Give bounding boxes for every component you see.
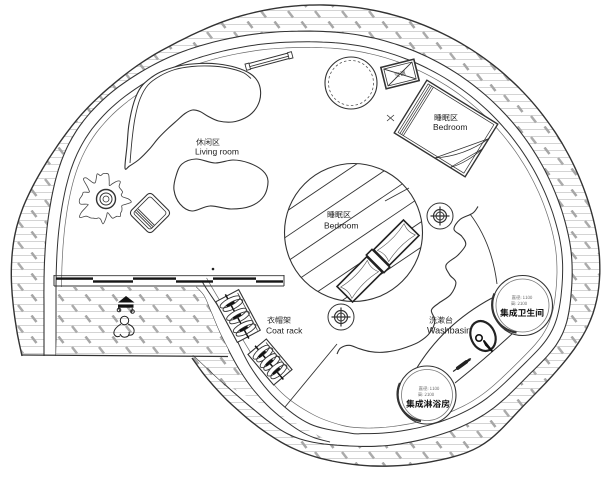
svg-text:Coat rack: Coat rack	[266, 326, 303, 336]
svg-text:Bedroom: Bedroom	[433, 122, 468, 132]
svg-text:Washbasin: Washbasin	[427, 326, 471, 336]
svg-text:Bedroom: Bedroom	[324, 221, 359, 231]
svg-text:Living room: Living room	[195, 147, 239, 157]
